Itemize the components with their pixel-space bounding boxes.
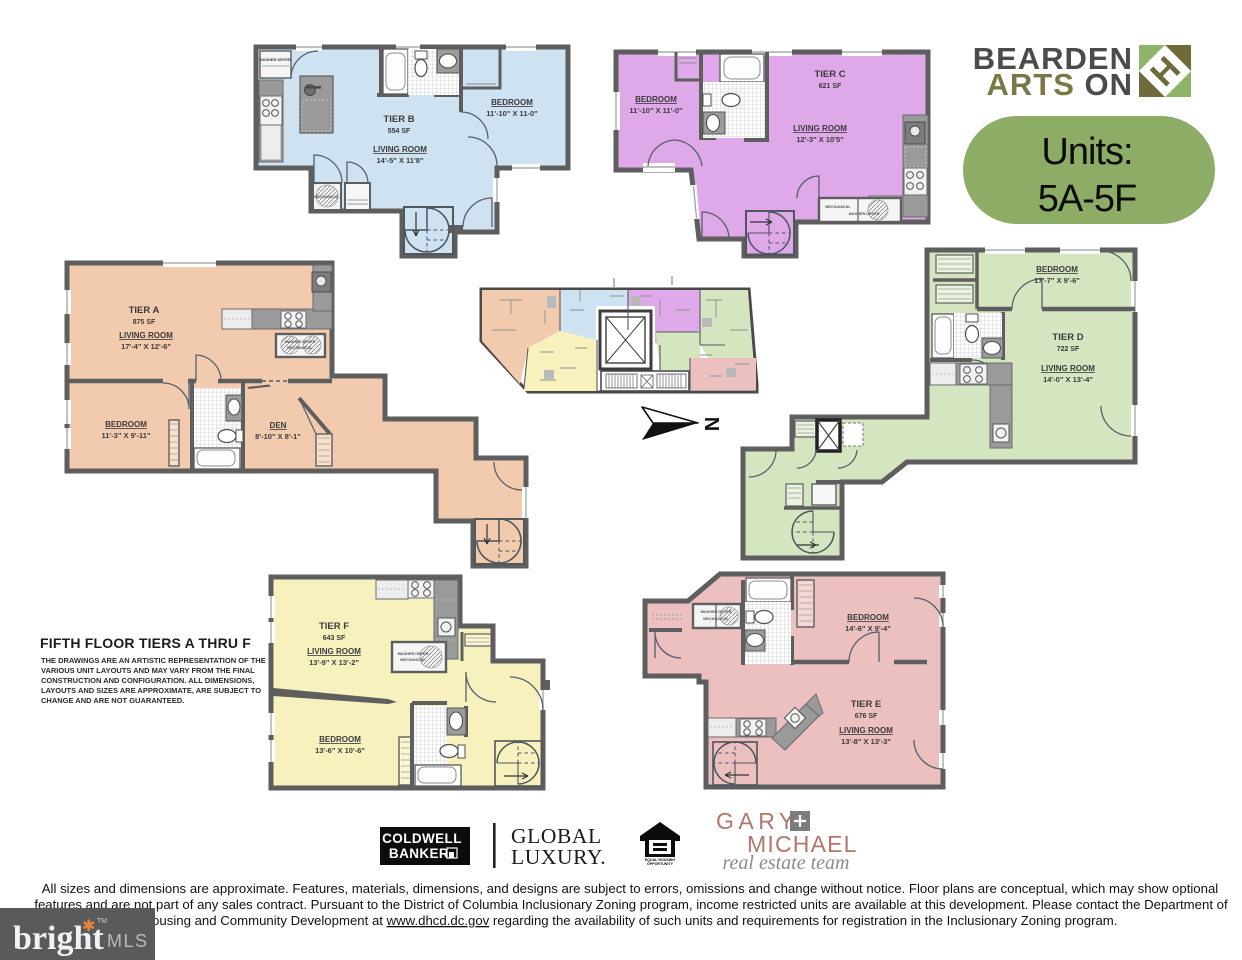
svg-text:554 SF: 554 SF [388,128,411,135]
svg-text:TIER E: TIER E [851,699,882,710]
svg-text:LIVING ROOM: LIVING ROOM [1041,364,1095,373]
svg-text:MECHANICAL: MECHANICAL [314,195,340,199]
svg-text:621 SF: 621 SF [819,83,842,90]
svg-text:TIER B: TIER B [383,114,414,125]
svg-text:DEN: DEN [270,421,287,430]
svg-text:676 SF: 676 SF [855,713,878,720]
svg-text:BEDROOM: BEDROOM [635,95,677,104]
svg-text:CONSTRUCTION AND CONFIGURATION: CONSTRUCTION AND CONFIGURATION. ALL DIME… [41,676,254,685]
svg-text:722 SF: 722 SF [1057,346,1080,353]
svg-text:COLDWELL: COLDWELL [382,831,462,846]
svg-text:WASHER DRYER: WASHER DRYER [259,57,291,62]
svg-text:11'-10" X 11'-0": 11'-10" X 11'-0" [629,106,683,115]
svg-text:TIER A: TIER A [129,305,160,316]
svg-text:LIVING ROOM: LIVING ROOM [119,331,173,340]
svg-text:TIER C: TIER C [814,69,845,80]
svg-text:ARTS ON: ARTS ON [986,67,1133,102]
svg-text:LAYOUTS AND SIZES ARE APPROXIM: LAYOUTS AND SIZES ARE APPROXIMATE, ARE S… [41,686,261,695]
svg-text:WASHER DRYER: WASHER DRYER [701,610,732,614]
svg-text:WASHER DRYER: WASHER DRYER [398,652,429,656]
svg-text:features and are not part of a: features and are not part of any sales c… [34,897,1228,912]
svg-text:BEDROOM: BEDROOM [491,98,533,107]
svg-text:THE DRAWINGS ARE AN ARTISTIC R: THE DRAWINGS ARE AN ARTISTIC REPRESENTAT… [41,656,266,665]
svg-text:CHANGE AND ARE NOT GUARANTEED.: CHANGE AND ARE NOT GUARANTEED. [41,696,184,705]
svg-text:TM: TM [97,918,107,925]
svg-text:WASHER DRYER: WASHER DRYER [285,340,316,344]
svg-text:✱: ✱ [82,918,95,935]
svg-text:13'-9" X 13'-2": 13'-9" X 13'-2" [309,658,359,667]
svg-text:MECHANICAL: MECHANICAL [825,205,851,209]
svg-text:11'-10" X 11-0": 11'-10" X 11-0" [486,109,538,118]
svg-text:11'-3" X 9'-11": 11'-3" X 9'-11" [101,431,150,440]
svg-text:BEDROOM: BEDROOM [319,735,361,744]
svg-text:LIVING ROOM: LIVING ROOM [373,145,427,154]
svg-text:Units:: Units: [1041,131,1132,173]
svg-text:MECHANICAL: MECHANICAL [703,617,729,621]
svg-text:real estate team: real estate team [722,852,849,874]
svg-text:17'-4" X 12'-6": 17'-4" X 12'-6" [121,342,171,351]
svg-text:14'-6" X 9'-4": 14'-6" X 9'-4" [845,624,891,633]
svg-text:14'-0" X 13'-4": 14'-0" X 13'-4" [1043,375,1093,384]
svg-text:BEDROOM: BEDROOM [105,420,147,429]
svg-text:BANKER: BANKER [389,846,449,861]
svg-text:Housing and Community Developm: Housing and Community Development at www… [143,913,1118,928]
svg-text:TIER F: TIER F [319,621,349,632]
svg-text:LIVING ROOM: LIVING ROOM [839,726,893,735]
svg-text:FIFTH FLOOR TIERS A THRU F: FIFTH FLOOR TIERS A THRU F [40,635,251,651]
svg-text:All sizes and dimensions are a: All sizes and dimensions are approximate… [42,881,1219,896]
svg-text:OPPORTUNITY: OPPORTUNITY [647,862,674,866]
svg-text:BEDROOM: BEDROOM [847,613,889,622]
svg-text:LUXURY.: LUXURY. [511,845,606,869]
svg-text:8'-10" X 8'-1": 8'-10" X 8'-1" [255,432,301,441]
svg-text:LIVING ROOM: LIVING ROOM [307,647,361,656]
svg-text:TIER D: TIER D [1052,332,1083,343]
svg-text:5A-5F: 5A-5F [1038,178,1136,220]
svg-text:VARIOUS UNIT LAYOUTS AND MAY V: VARIOUS UNIT LAYOUTS AND MAY VARY FROM T… [41,666,255,675]
svg-text:13'-8" X 13'-3": 13'-8" X 13'-3" [841,737,891,746]
svg-text:MLS: MLS [107,931,149,951]
svg-text:N: N [700,417,722,431]
svg-text:MECHANICAL: MECHANICAL [287,346,313,350]
svg-text:12'-3" X 10'5": 12'-3" X 10'5" [796,135,844,144]
svg-text:WASHER DRYER: WASHER DRYER [849,212,880,216]
svg-text:13'-6" X 10'-6": 13'-6" X 10'-6" [315,746,365,755]
svg-text:BEDROOM: BEDROOM [1036,265,1078,274]
svg-text:17'-7" X 9'-6": 17'-7" X 9'-6" [1034,276,1080,285]
svg-text:875 SF: 875 SF [133,319,156,326]
svg-text:14'-5" X 11'8": 14'-5" X 11'8" [377,156,424,165]
svg-text:643 SF: 643 SF [323,635,346,642]
svg-text:LIVING ROOM: LIVING ROOM [793,124,847,133]
svg-text:MECHANICAL: MECHANICAL [400,658,426,662]
